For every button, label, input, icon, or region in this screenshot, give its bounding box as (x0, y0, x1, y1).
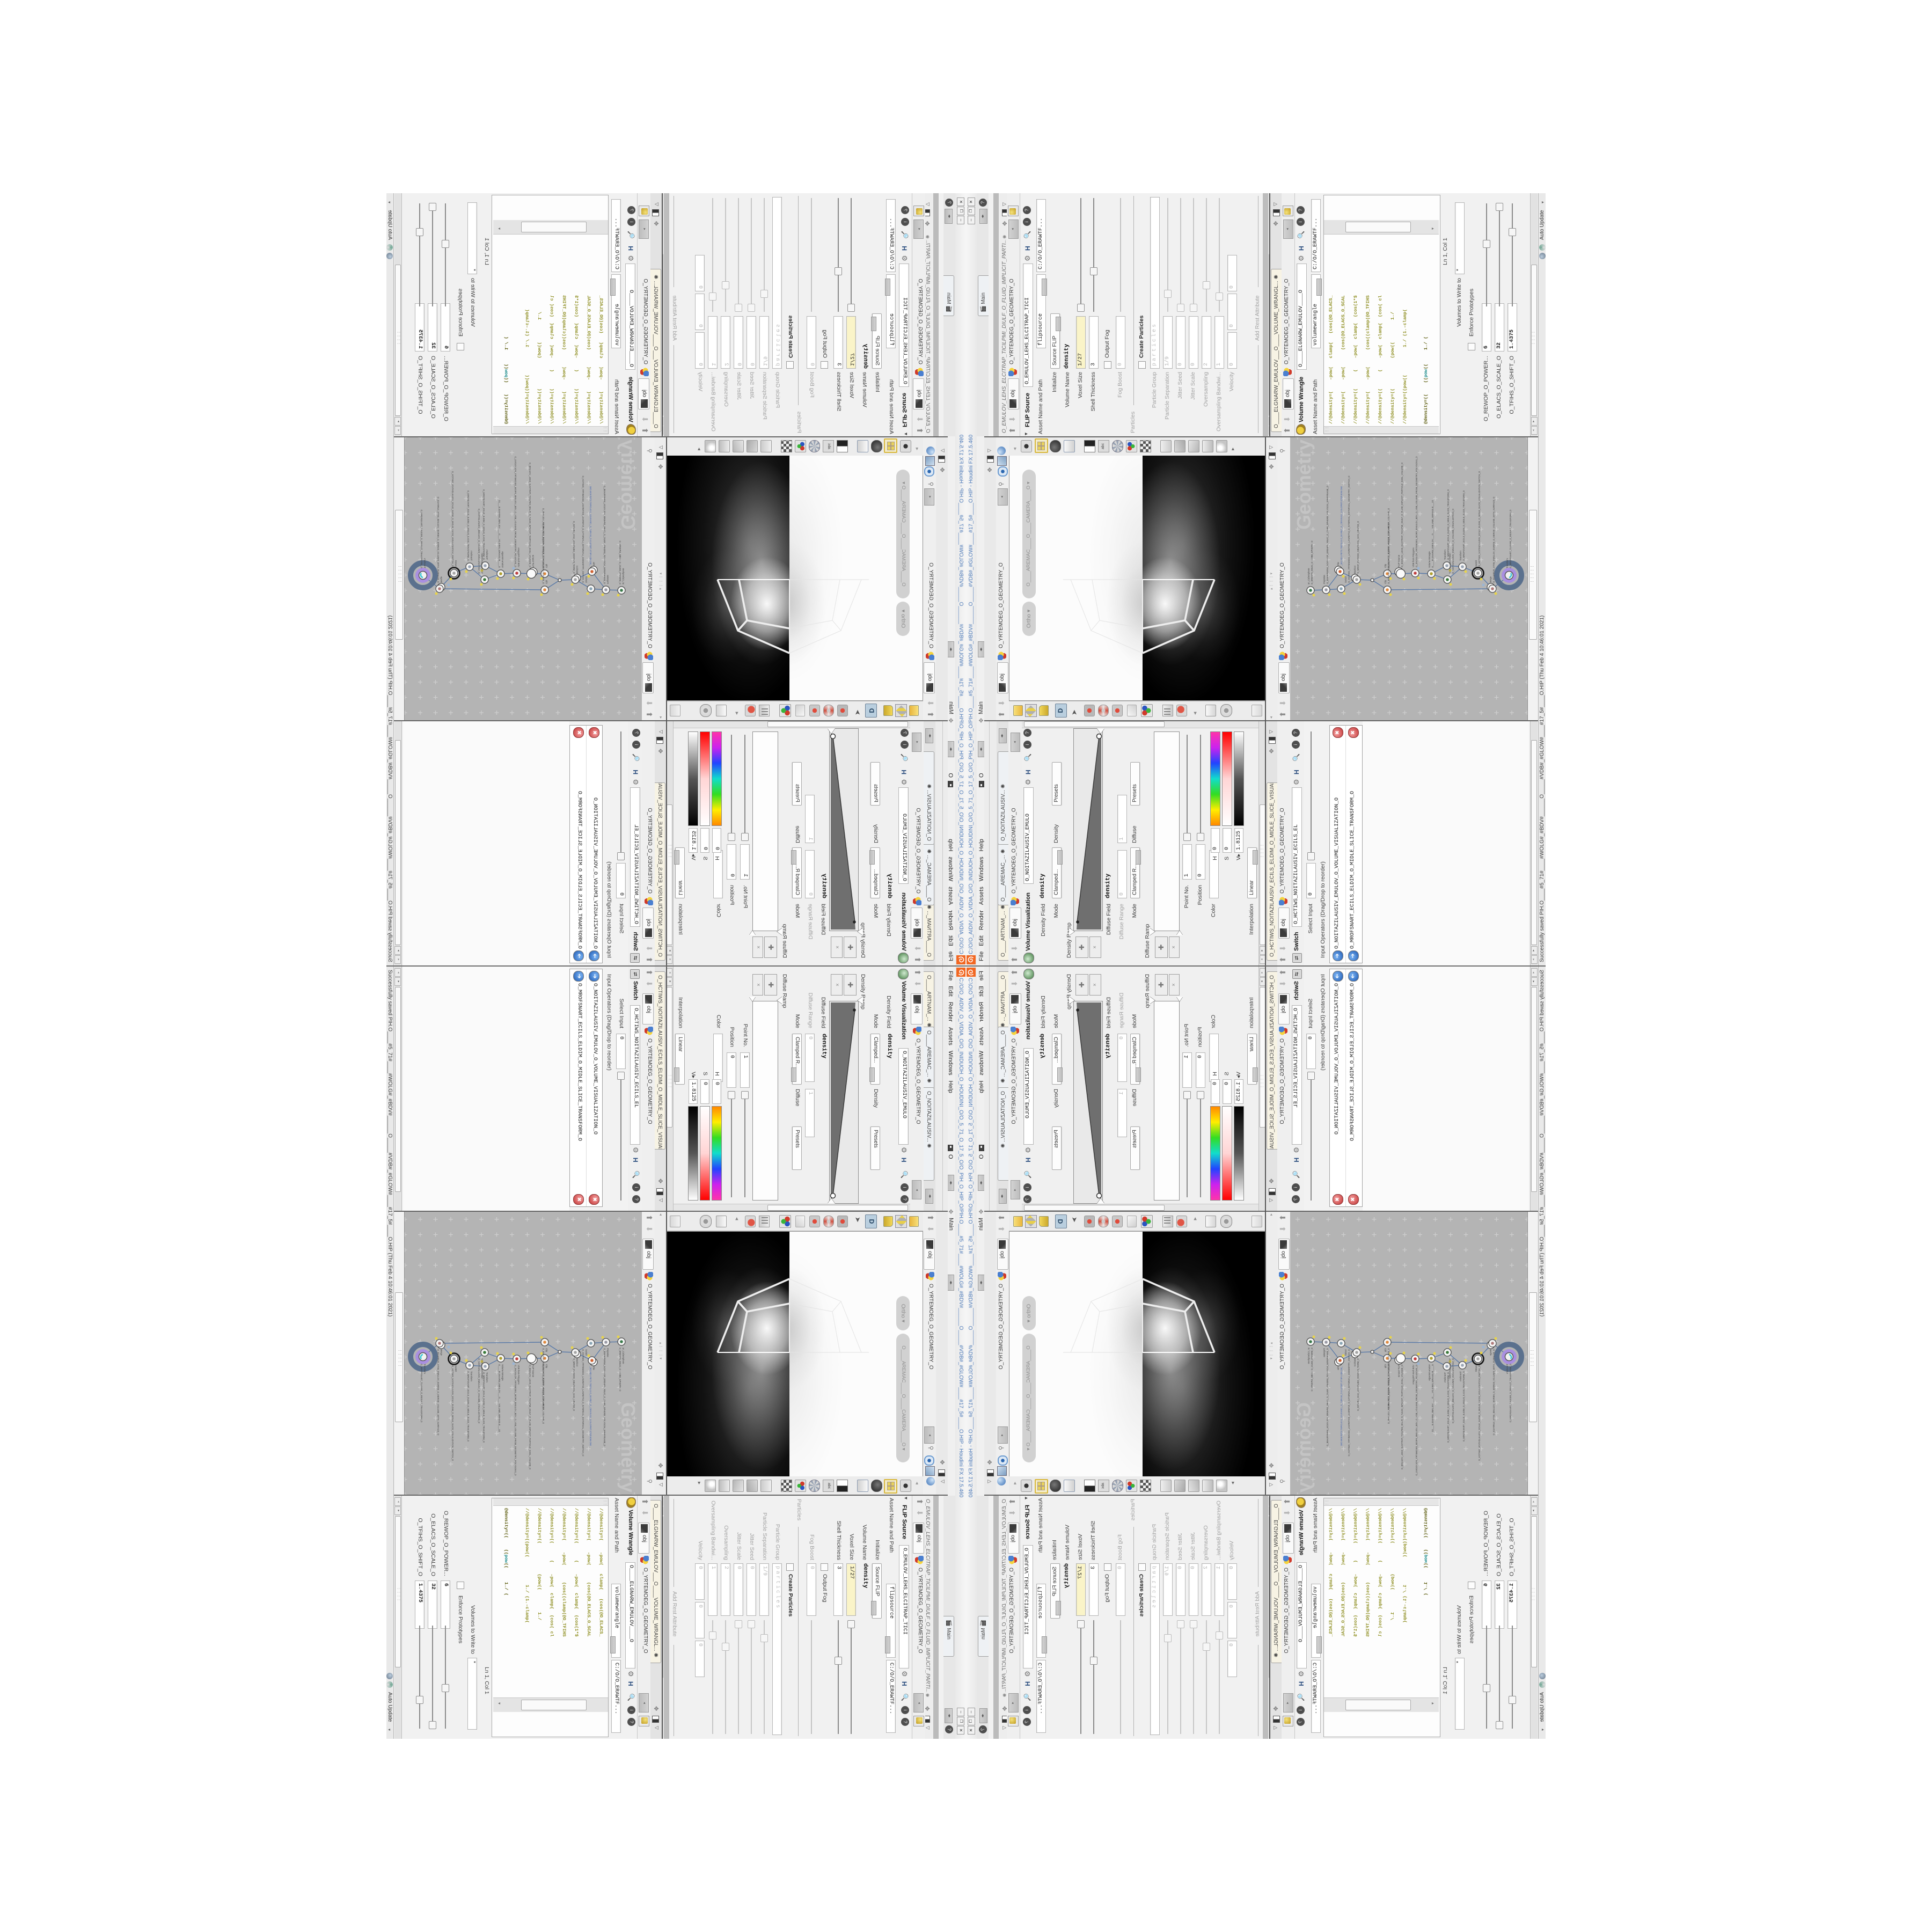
svg-text:O_EMULOV_REPPU_PILC_O_CLIP_UPP: O_EMULOV_REPPU_PILC_O_CLIP_UPPER_VOLUME_… (1387, 1364, 1390, 1424)
svg-text:O_HCTIWS_YRTEMOEG_LANRETXE_LAN: O_HCTIWS_YRTEMOEG_LANRETXE_LANRETNI_O_IN… (1348, 1349, 1350, 1457)
svg-text:O_MROFSNART_ECILS_ELDIM_O_MIDL: O_MROFSNART_ECILS_ELDIM_O_MIDLE_SLICE_TR… (1462, 490, 1465, 561)
svg-text:Transform: Transform (486, 550, 488, 560)
svg-text:O_EMARFERIW_NOGYLOP_EREHPS_EBU: O_EMARFERIW_NOGYLOP_EREHPS_EBUC_O_CUBE_S… (603, 1348, 606, 1447)
svg-text:Geometry: Geometry (617, 1402, 639, 1492)
svg-text:_BO.M01.PETS.TEPULS.O_50.REC_O: _BO.M01.PETS.TEPULS.O_50.REC_O_CENSUS1_0… (589, 486, 592, 566)
svg-text:VDB from Polygons: VDB from Polygons (1412, 1365, 1415, 1385)
svg-text:BoolCut: BoolCut (1353, 1358, 1356, 1367)
svg-text:Volume Wrangle: Volume Wrangle (501, 551, 504, 568)
svg-text:O_ECAFRUS_HTIW_EMULOV_EGREM_O_: O_ECAFRUS_HTIW_EMULOV_EGREM_O_MERGE_VOLU… (437, 1349, 440, 1436)
svg-text:Clip: Clip (545, 563, 548, 568)
svg-text:Volume Wrangle: Volume Wrangle (1428, 1364, 1431, 1381)
svg-text:Volume Visualization: Volume Visualization (481, 553, 484, 574)
svg-text:VDB from Polygons: VDB from Polygons (1412, 547, 1415, 567)
svg-text:File: File (1337, 562, 1340, 566)
svg-text:O_HCTIWS_YRTEMOEG_LANRETXE_LAN: O_HCTIWS_YRTEMOEG_LANRETXE_LANRETNI_O_IN… (1348, 475, 1350, 583)
svg-text:PolyWire: PolyWire (606, 1348, 609, 1357)
svg-text:Switch: Switch (1344, 1349, 1347, 1356)
svg-text:O_SNOGLOP_YRTEMOEG_MORF_EMULOV: O_SNOGLOP_YRTEMOEG_MORF_EMULOV_BDV_O_VDB… (514, 1365, 517, 1476)
svg-text:O_MROF_EVAWOK_GBU/GGOL_GAN_UBU: O_MROF_EVAWOK_GBU/GGOL_GAN_UBU/GE_O (1357, 1358, 1359, 1411)
svg-text:O_ECAFRUS_HTIW_EMULOV_EGREM_O_: O_ECAFRUS_HTIW_EMULOV_EGREM_O_MERGE_VOLU… (437, 496, 440, 583)
svg-text:O_NOITAZILAUSIV_EMULOV_O_VOLUM: O_NOITAZILAUSIV_EMULOV_O_VOLUME_VISUALIZ… (1452, 508, 1454, 574)
svg-text:Transform: Transform (423, 1364, 426, 1374)
svg-text:O_MROF_EVAWOK_GBU/GGOL_GAN_UBU: O_MROF_EVAWOK_GBU/GGOL_GAN_UBU/GE_O (573, 1358, 575, 1411)
svg-text:Switch: Switch (455, 560, 457, 567)
svg-text:_BO.M01.PETS.TEPULS.O_50.REC_O: _BO.M01.PETS.TEPULS.O_50.REC_O_CENSUS1_0… (1340, 486, 1343, 566)
svg-text:O_EMARFERIW_NOGYLOP_EREHPS_EBU: O_EMARFERIW_NOGYLOP_EREHPS_EBUC_O_CUBE_S… (1326, 1348, 1329, 1447)
svg-text:Clip: Clip (1384, 563, 1387, 568)
svg-text:O____ELGNARW_EMULOV___O____VOL: O____ELGNARW_EMULOV___O____VOLUME_WRANGL… (498, 1364, 501, 1432)
svg-text:O_EMULOV_REPPU_PILC_O_CLIP_UPP: O_EMULOV_REPPU_PILC_O_CLIP_UPPER_VOLUME_… (1387, 508, 1390, 568)
svg-text:Transform: Transform (1459, 551, 1462, 561)
svg-text:Transform: Transform (470, 1371, 473, 1381)
svg-text:O_HCTIWS_YRTEMOEG_LANRETXE_LAN: O_HCTIWS_YRTEMOEG_LANRETXE_LANRETNI_O_IN… (582, 475, 584, 583)
svg-text:O____ELGNARW_EMULOV___O____VOL: O____ELGNARW_EMULOV___O____VOLUME_WRANGL… (1431, 500, 1434, 568)
svg-text:_BO.M01.PETS.TEPULS.O_50.REC_O: _BO.M01.PETS.TEPULS.O_50.REC_O_CENSUS1_0… (1340, 1366, 1343, 1446)
svg-text:O_EREHPS_EBUC_O_CUBE_SPHERE_O: O_EREHPS_EBUC_O_CUBE_SPHERE_O (1311, 1348, 1313, 1392)
svg-text:Clip: Clip (545, 1348, 548, 1352)
svg-text:File: File (592, 562, 595, 566)
svg-text:PolyWire: PolyWire (1323, 575, 1326, 584)
svg-text:Geometry: Geometry (1293, 1402, 1315, 1492)
svg-text:Geometry: Geometry (617, 440, 639, 530)
svg-text:O_MROFSNART_TLUSER_O_RESULT_TR: O_MROFSNART_TLUSER_O_RESULT_TRANSFORM_O (420, 509, 423, 568)
svg-text:Transform: Transform (470, 551, 473, 561)
svg-text:O____ELGNARW_EMULOV___O____VOL: O____ELGNARW_EMULOV___O____VOLUME_WRANGL… (498, 500, 501, 568)
svg-text:FLIP Source: FLIP Source (1397, 1365, 1400, 1378)
svg-text:O_EMARFERIW_NOGYLOP_EREHPS_EBU: O_EMARFERIW_NOGYLOP_EREHPS_EBUC_O_CUBE_S… (1326, 485, 1329, 584)
svg-text:O_EMULOV_LEHS_ELCITRAP_TICILPM: O_EMULOV_LEHS_ELCITRAP_TICILPMI_DIULF_O_… (1401, 462, 1403, 567)
svg-text:Clip: Clip (545, 1364, 548, 1368)
svg-text:an_CubeSphere: an_CubeSphere (622, 568, 625, 584)
svg-text:Volume Visualization: Volume Visualization (481, 1358, 484, 1379)
svg-text:O_EREHPS_EBUC_O_CUBE_SPHERE_O: O_EREHPS_EBUC_O_CUBE_SPHERE_O (619, 1348, 621, 1392)
svg-text:Switch: Switch (455, 1365, 457, 1372)
svg-text:Transform: Transform (1444, 550, 1446, 560)
svg-text:O_EMULOV_REPPU_PILC_O_CLIP_UPP: O_EMULOV_REPPU_PILC_O_CLIP_UPPER_VOLUME_… (542, 1364, 545, 1424)
svg-text:O_MROFSNART_TLUSER_O_RESULT_TR: O_MROFSNART_TLUSER_O_RESULT_TRANSFORM_O (420, 1364, 423, 1423)
svg-text:O_EREHPS_EBUC_O_CUBE_SPHERE_O: O_EREHPS_EBUC_O_CUBE_SPHERE_O (1311, 540, 1313, 584)
svg-text:O_MROFSNART_TLUSER_O_RESULT_TR: O_MROFSNART_TLUSER_O_RESULT_TRANSFORM_O (1509, 1364, 1512, 1423)
svg-text:an_CubeSphere: an_CubeSphere (1307, 1348, 1310, 1364)
svg-text:Volume Visualization: Volume Visualization (1448, 553, 1451, 574)
svg-text:File: File (1337, 1366, 1340, 1370)
svg-text:O_NOITAZILAUSIV_EMULOV_O_VOLUM: O_NOITAZILAUSIV_EMULOV_O_VOLUME_VISUALIZ… (478, 508, 480, 574)
svg-text:Geometry: Geometry (1293, 440, 1315, 530)
svg-text:O_HCTIWS_NOITAZILAUSIV_ECILS_E: O_HCTIWS_NOITAZILAUSIV_ECILS_ELDIM_O_MID… (451, 1365, 454, 1461)
svg-text:O_EREHPS_EBUC_O_CUBE_SPHERE_O: O_EREHPS_EBUC_O_CUBE_SPHERE_O (619, 540, 621, 584)
svg-text:FLIP Source: FLIP Source (1397, 554, 1400, 567)
svg-text:O_SNOGLOP_YRTEMOEG_MORF_EMULOV: O_SNOGLOP_YRTEMOEG_MORF_EMULOV_BDV_O_VDB… (1415, 1365, 1418, 1476)
svg-text:BoolCut: BoolCut (576, 565, 579, 574)
svg-text:O_HCTIWS_YRTEMOEG_LANRETXE_LAN: O_HCTIWS_YRTEMOEG_LANRETXE_LANRETNI_O_IN… (582, 1349, 584, 1457)
svg-text:Transform: Transform (1459, 1371, 1462, 1381)
svg-text:Switch: Switch (1475, 1365, 1477, 1372)
svg-text:O_MROFSNART_ECILS_ELDIM_O_MIDL: O_MROFSNART_ECILS_ELDIM_O_MIDLE_SLICE_TR… (467, 490, 470, 561)
svg-text:O_EMULOV_LEHS_ELCITRAP_TICILPM: O_EMULOV_LEHS_ELCITRAP_TICILPMI_DIULF_O_… (1401, 1365, 1403, 1470)
svg-text:Volume Wrangle: Volume Wrangle (1428, 551, 1431, 568)
svg-text:O____ELGNARW_EMULOV___O____VOL: O____ELGNARW_EMULOV___O____VOLUME_WRANGL… (1431, 1364, 1434, 1432)
svg-text:_BO.M01.PETS.TEPULS.O_50.REC_O: _BO.M01.PETS.TEPULS.O_50.REC_O_CENSUS1_0… (589, 1366, 592, 1446)
svg-text:Switch: Switch (1475, 560, 1477, 567)
svg-text:O_HCTIWS_NOITAZILAUSIV_ECILS_E: O_HCTIWS_NOITAZILAUSIV_ECILS_ELDIM_O_MID… (1478, 471, 1481, 567)
svg-text:O_MROFSNART_ECILS_ELDIM_O_MIDL: O_MROFSNART_ECILS_ELDIM_O_MIDLE_SLICE_TR… (482, 1372, 485, 1443)
svg-text:BoolCut: BoolCut (1353, 565, 1356, 574)
svg-text:O_EMULOV_LEHS_ELCITRAP_TICILPM: O_EMULOV_LEHS_ELCITRAP_TICILPMI_DIULF_O_… (529, 462, 531, 567)
svg-text:O_SNOGLOP_YRTEMOEG_MORF_EMULOV: O_SNOGLOP_YRTEMOEG_MORF_EMULOV_BDV_O_VDB… (514, 456, 517, 567)
svg-text:Transform: Transform (486, 1372, 488, 1382)
svg-text:an_CubeSphere: an_CubeSphere (1307, 568, 1310, 584)
svg-text:Transform: Transform (423, 558, 426, 568)
svg-text:BoolCut: BoolCut (576, 1358, 579, 1367)
svg-text:Clip: Clip (1384, 580, 1387, 584)
svg-text:PolyWire: PolyWire (606, 575, 609, 584)
svg-text:File: File (592, 1366, 595, 1370)
svg-text:O_EMULOV_LEHS_ELCITRAP_TICILPM: O_EMULOV_LEHS_ELCITRAP_TICILPMI_DIULF_O_… (529, 1365, 531, 1470)
svg-text:Switch: Switch (585, 1349, 588, 1356)
svg-text:Clip: Clip (1384, 1348, 1387, 1352)
svg-text:O_ECAFRUS_HTIW_EMULOV_EGREM_O_: O_ECAFRUS_HTIW_EMULOV_EGREM_O_MERGE_VOLU… (1492, 496, 1495, 583)
svg-text:Transform: Transform (1506, 558, 1509, 568)
svg-text:VDB from Polygons: VDB from Polygons (517, 547, 520, 567)
svg-text:O_MROFSNART_ECILS_ELDIM_O_MIDL: O_MROFSNART_ECILS_ELDIM_O_MIDLE_SLICE_TR… (1447, 1372, 1450, 1443)
svg-text:O_NOITAZILAUSIV_EMULOV_O_VOLUM: O_NOITAZILAUSIV_EMULOV_O_VOLUME_VISUALIZ… (1452, 1358, 1454, 1424)
svg-text:Transform: Transform (1506, 1364, 1509, 1374)
svg-text:Switch: Switch (585, 576, 588, 583)
svg-text:O_NOITAZILAUSIV_EMULOV_O_VOLUM: O_NOITAZILAUSIV_EMULOV_O_VOLUME_VISUALIZ… (478, 1358, 480, 1424)
svg-text:O_MROFSNART_TLUSER_O_RESULT_TR: O_MROFSNART_TLUSER_O_RESULT_TRANSFORM_O (1509, 509, 1512, 568)
svg-text:Merge: Merge (1489, 576, 1492, 583)
svg-text:O_ECAFRUS_HTIW_EMULOV_EGREM_O_: O_ECAFRUS_HTIW_EMULOV_EGREM_O_MERGE_VOLU… (1492, 1349, 1495, 1436)
svg-text:O_EMULOV_REPPU_PILC_O_CLIP_UPP: O_EMULOV_REPPU_PILC_O_CLIP_UPPER_VOLUME_… (542, 508, 545, 568)
svg-text:O_EMARFERIW_NOGYLOP_EREHPS_EBU: O_EMARFERIW_NOGYLOP_EREHPS_EBUC_O_CUBE_S… (603, 485, 606, 584)
svg-text:an_CubeSphere: an_CubeSphere (622, 1348, 625, 1364)
svg-text:FLIP Source: FLIP Source (532, 1365, 535, 1378)
svg-text:O_MROFSNART_ECILS_ELDIM_O_MIDL: O_MROFSNART_ECILS_ELDIM_O_MIDLE_SLICE_TR… (467, 1371, 470, 1442)
svg-text:Switch: Switch (1344, 576, 1347, 583)
svg-text:Clip: Clip (545, 580, 548, 584)
svg-text:O_HCTIWS_NOITAZILAUSIV_ECILS_E: O_HCTIWS_NOITAZILAUSIV_ECILS_ELDIM_O_MID… (451, 471, 454, 567)
svg-text:Transform: Transform (1444, 1372, 1446, 1382)
svg-text:Volume Visualization: Volume Visualization (1448, 1358, 1451, 1379)
svg-text:FLIP Source: FLIP Source (532, 554, 535, 567)
svg-text:Volume Wrangle: Volume Wrangle (501, 1364, 504, 1381)
svg-text:O_MROFSNART_ECILS_ELDIM_O_MIDL: O_MROFSNART_ECILS_ELDIM_O_MIDLE_SLICE_TR… (1462, 1371, 1465, 1442)
svg-text:VDB from Polygons: VDB from Polygons (517, 1365, 520, 1385)
svg-text:Merge: Merge (440, 576, 443, 583)
svg-text:O_MROF_EVAWOK_GBU/GGOL_GAN_UBU: O_MROF_EVAWOK_GBU/GGOL_GAN_UBU/GE_O (573, 521, 575, 574)
svg-text:O_HCTIWS_NOITAZILAUSIV_ECILS_E: O_HCTIWS_NOITAZILAUSIV_ECILS_ELDIM_O_MID… (1478, 1365, 1481, 1461)
svg-text:O_MROFSNART_ECILS_ELDIM_O_MIDL: O_MROFSNART_ECILS_ELDIM_O_MIDLE_SLICE_TR… (1447, 489, 1450, 560)
svg-text:Clip: Clip (1384, 1364, 1387, 1368)
svg-text:PolyWire: PolyWire (1323, 1348, 1326, 1357)
svg-text:Merge: Merge (440, 1349, 443, 1356)
svg-text:Merge: Merge (1489, 1349, 1492, 1356)
svg-text:O_SNOGLOP_YRTEMOEG_MORF_EMULOV: O_SNOGLOP_YRTEMOEG_MORF_EMULOV_BDV_O_VDB… (1415, 456, 1418, 567)
svg-text:O_MROFSNART_ECILS_ELDIM_O_MIDL: O_MROFSNART_ECILS_ELDIM_O_MIDLE_SLICE_TR… (482, 489, 485, 560)
svg-text:O_MROF_EVAWOK_GBU/GGOL_GAN_UBU: O_MROF_EVAWOK_GBU/GGOL_GAN_UBU/GE_O (1357, 521, 1359, 574)
